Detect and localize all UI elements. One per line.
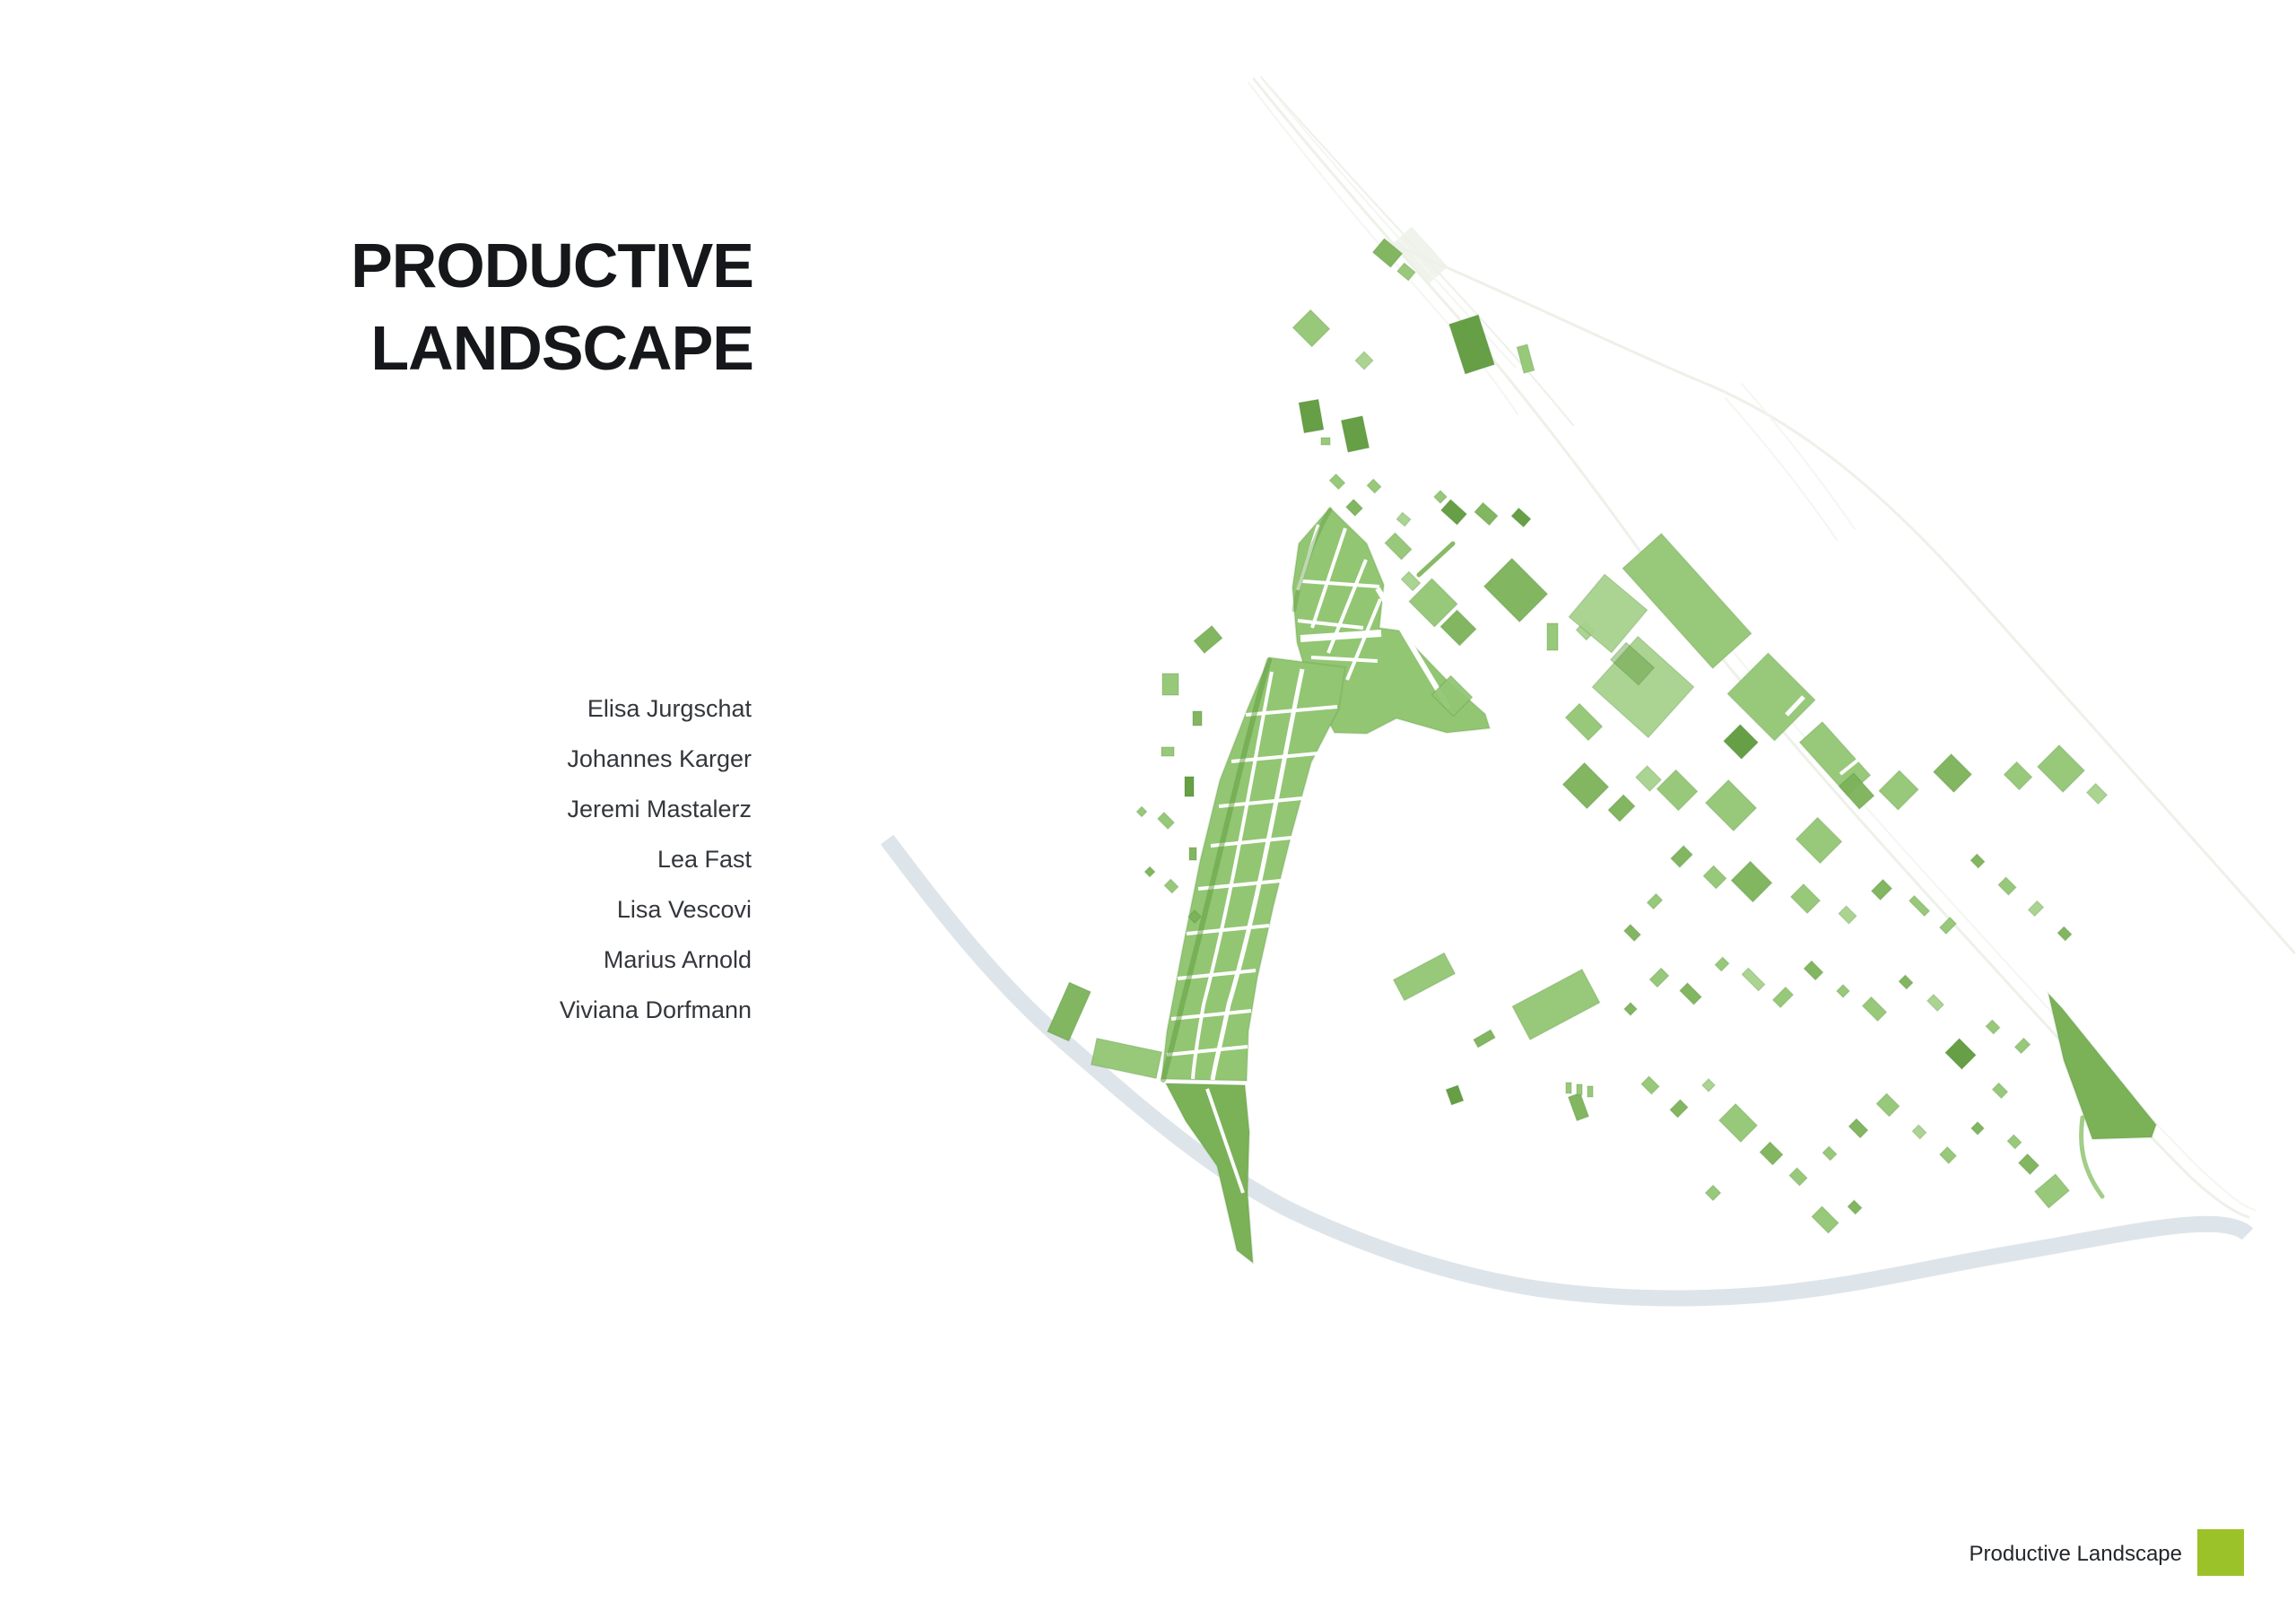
page-title-line2: LANDSCAPE — [351, 307, 753, 389]
team-member: Johannes Karger — [560, 734, 752, 784]
footer-chapter-label: Productive Landscape — [1970, 1541, 2183, 1568]
team-member: Jeremi Mastalerz — [560, 784, 752, 834]
team-member: Lisa Vescovi — [560, 884, 752, 935]
page-title-line1: PRODUCTIVE — [351, 224, 753, 307]
team-member: Marius Arnold — [560, 935, 752, 985]
team-member: Elisa Jurgschat — [560, 683, 752, 734]
page-title: PRODUCTIVE LANDSCAPE — [351, 224, 753, 389]
team-member: Lea Fast — [560, 834, 752, 884]
slide-canvas: PRODUCTIVE LANDSCAPE Elisa Jurgschat Joh… — [0, 0, 2296, 1618]
productive-landscape-map — [0, 0, 2296, 1618]
chapter-color-swatch — [2197, 1529, 2244, 1576]
team-member: Viviana Dorfmann — [560, 985, 752, 1035]
team-member-list: Elisa Jurgschat Johannes Karger Jeremi M… — [560, 683, 752, 1035]
